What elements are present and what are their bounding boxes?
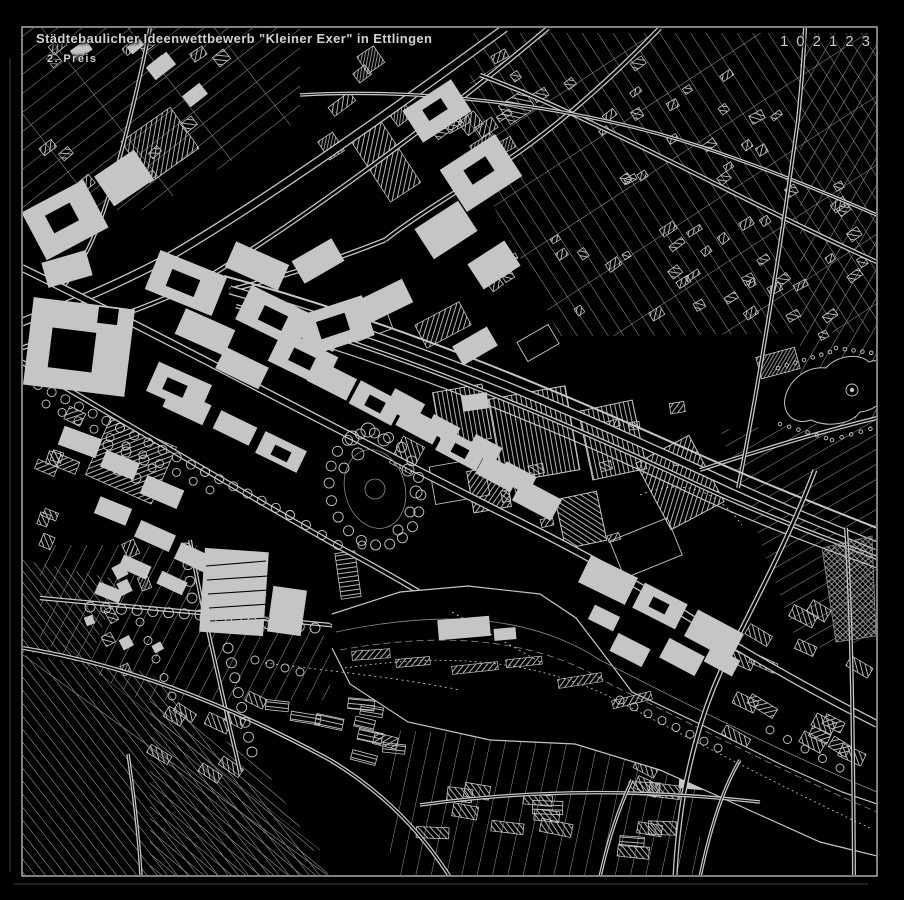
sheet-title: Städtebaulicher Ideenwettbewerb "Kleiner… bbox=[36, 31, 432, 46]
competition-map-sheet: Städtebaulicher Ideenwettbewerb "Kleiner… bbox=[0, 0, 904, 900]
prize-label: 2. Preis bbox=[47, 53, 97, 65]
map-drawing bbox=[0, 0, 904, 900]
map-layers bbox=[0, 0, 904, 900]
sheet-number: 102123 bbox=[780, 33, 878, 50]
layer-halls bbox=[86, 90, 801, 600]
